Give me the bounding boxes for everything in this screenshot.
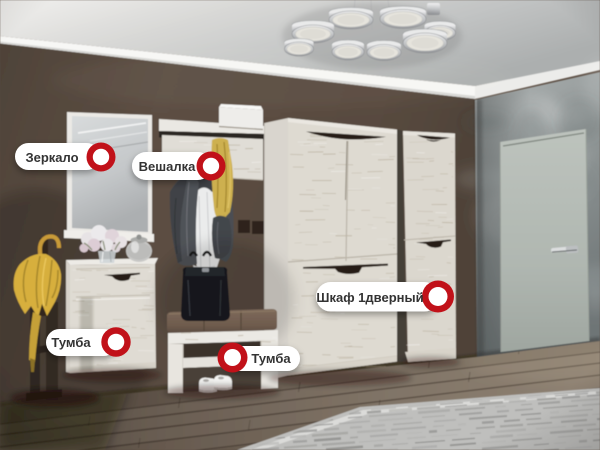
svg-text:Вешалка: Вешалка bbox=[139, 159, 196, 174]
svg-text:Зеркало: Зеркало bbox=[25, 150, 78, 165]
svg-text:Шкаф 1дверный: Шкаф 1дверный bbox=[316, 290, 423, 305]
svg-text:Тумба: Тумба bbox=[51, 335, 91, 350]
svg-text:Тумба: Тумба bbox=[251, 351, 291, 366]
